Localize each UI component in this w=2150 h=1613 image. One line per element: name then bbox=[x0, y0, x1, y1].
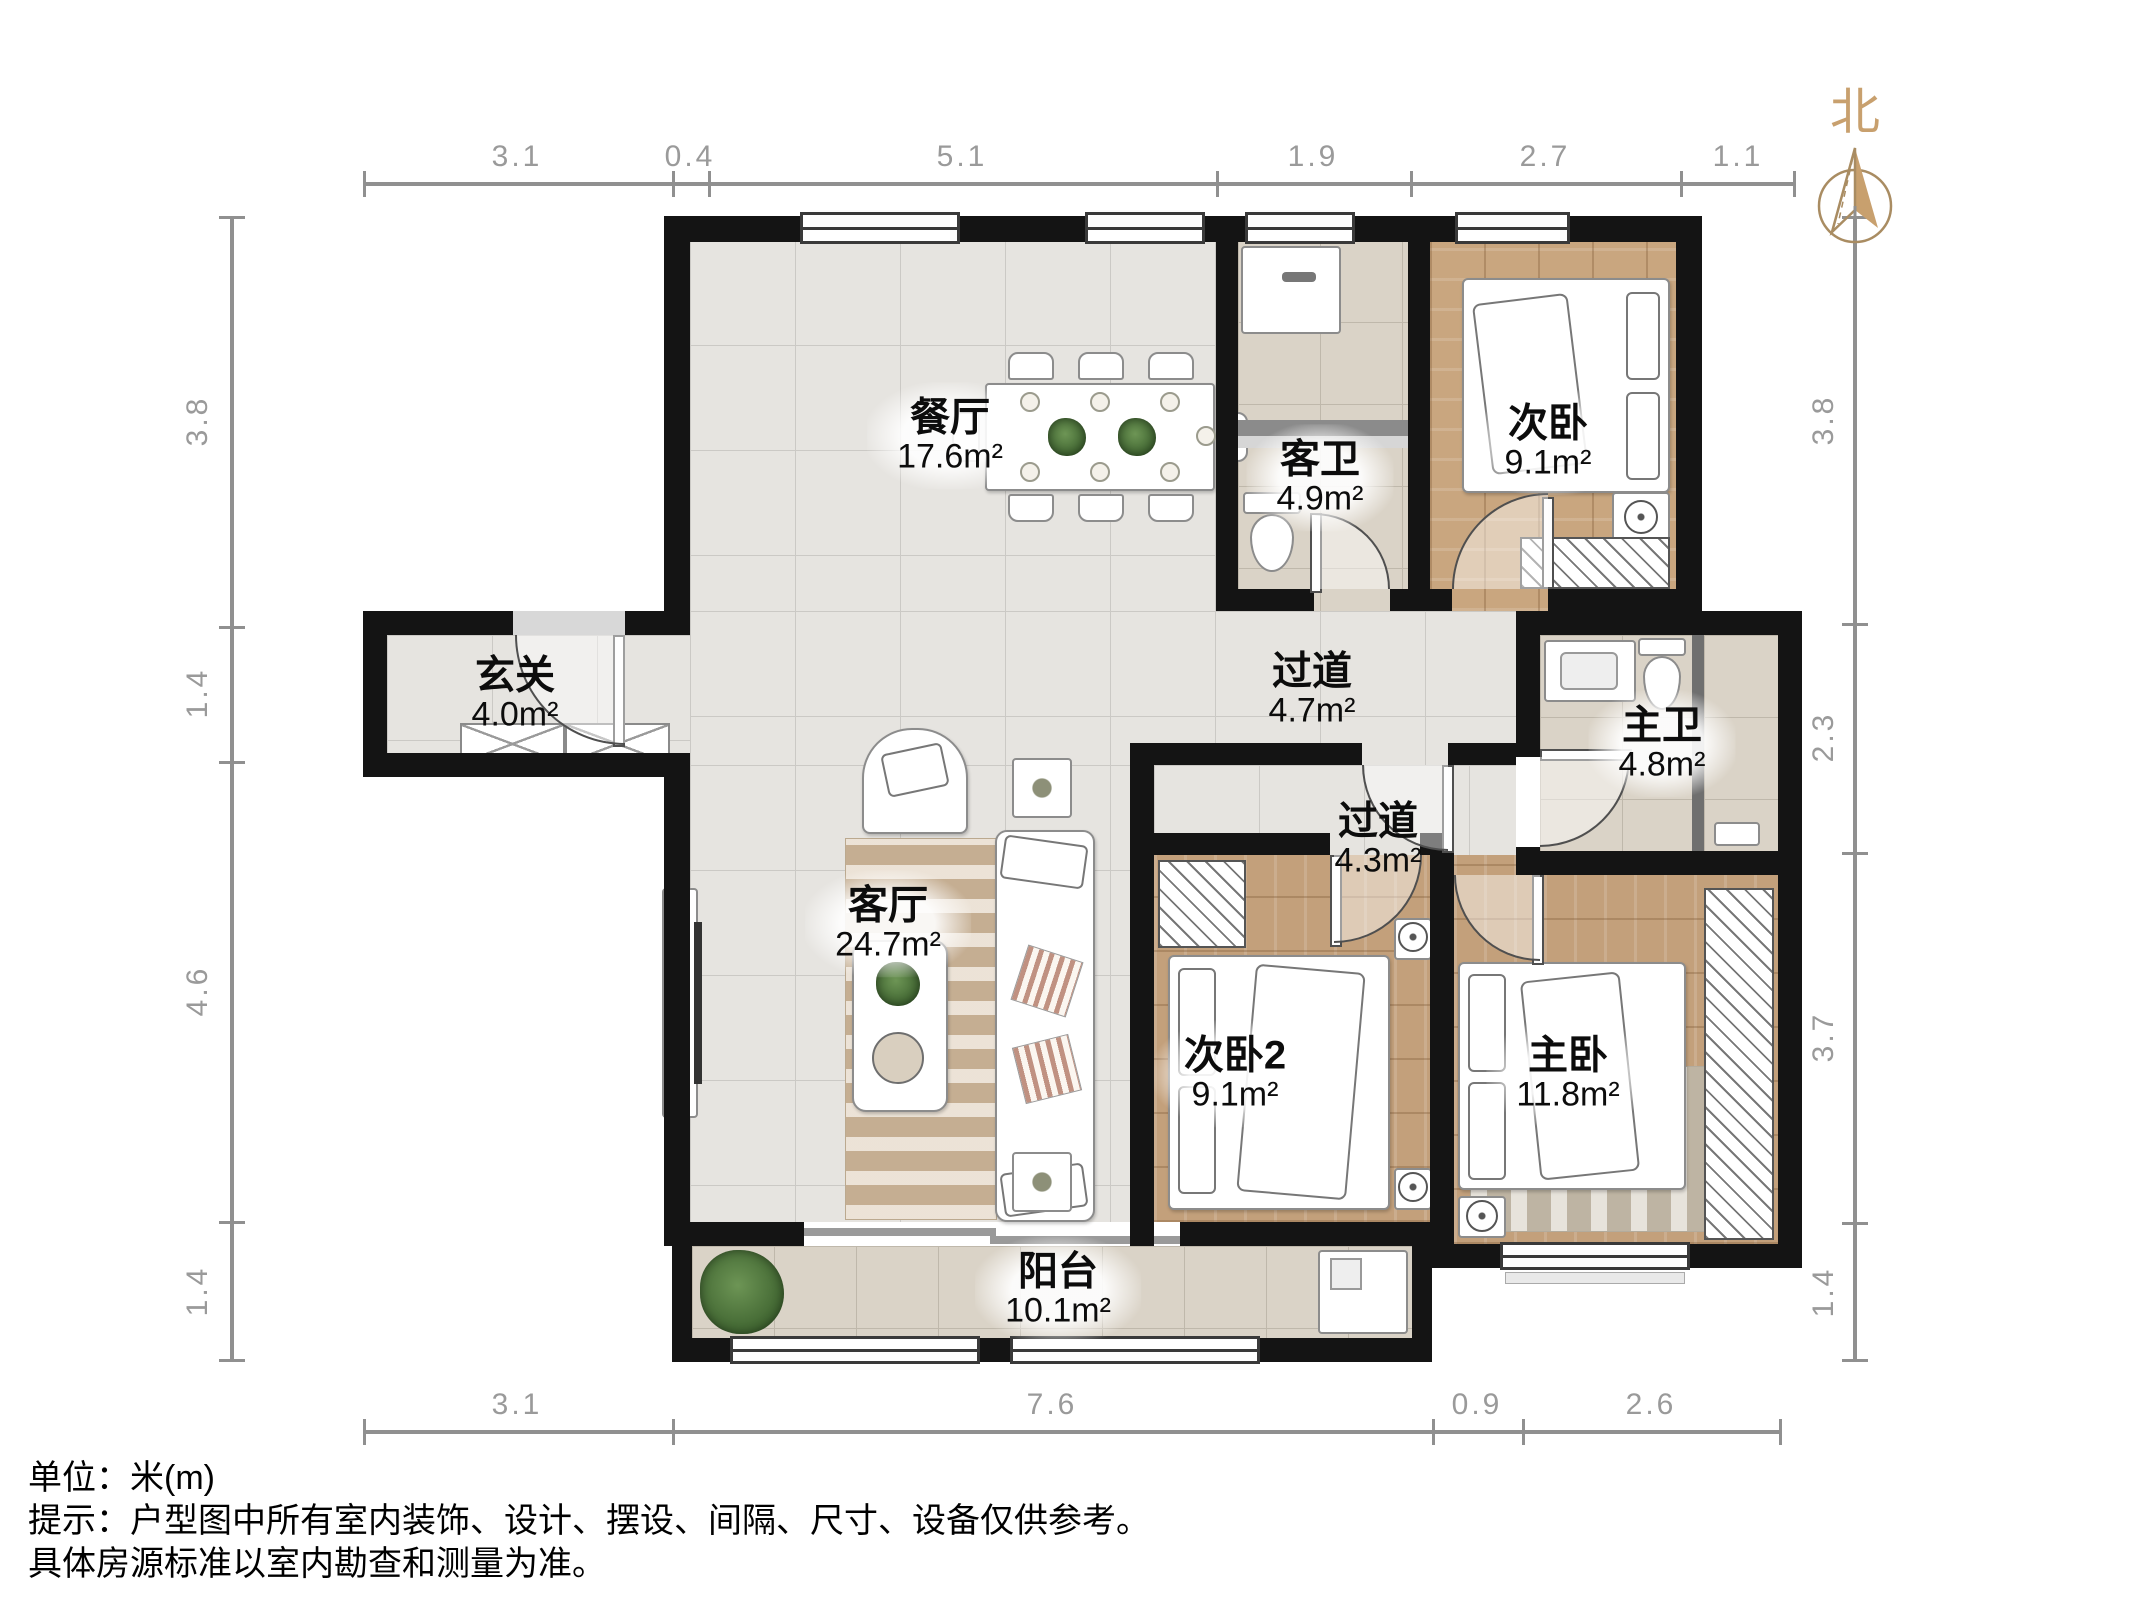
wall bbox=[1180, 1222, 1454, 1246]
wall bbox=[1448, 743, 1516, 765]
wardrobe-bedroom2 bbox=[1158, 860, 1246, 948]
room-name: 阳台 bbox=[1005, 1250, 1111, 1292]
shower-basin bbox=[1714, 822, 1760, 846]
wall bbox=[1778, 611, 1802, 1268]
dining-chair bbox=[1078, 352, 1124, 380]
tick bbox=[219, 1359, 245, 1362]
wall bbox=[1430, 833, 1454, 1246]
tv-screen bbox=[694, 922, 702, 1084]
wall bbox=[1216, 240, 1238, 589]
wall bbox=[1412, 1244, 1432, 1362]
dim-bottom: 3.1 bbox=[492, 1388, 543, 1422]
room-label-bedroom-2: 次卧2 9.1m² bbox=[1154, 1020, 1316, 1127]
dining-chair bbox=[1008, 352, 1054, 380]
wall bbox=[1516, 847, 1540, 875]
room-area: 4.8m² bbox=[1619, 746, 1706, 783]
tick bbox=[1842, 852, 1868, 855]
wall bbox=[1130, 743, 1362, 765]
room-name: 客卫 bbox=[1277, 438, 1364, 480]
wall bbox=[1408, 240, 1430, 589]
wall bbox=[1516, 611, 1802, 635]
wall bbox=[1154, 833, 1330, 855]
room-area: 4.9m² bbox=[1277, 480, 1364, 517]
tick bbox=[219, 761, 245, 764]
tick bbox=[1842, 623, 1868, 626]
table-plant bbox=[1048, 418, 1086, 456]
dimension-line-left bbox=[230, 216, 234, 1362]
plate bbox=[1196, 426, 1216, 446]
wall bbox=[1216, 589, 1314, 611]
dim-top: 5.1 bbox=[937, 140, 988, 174]
plate bbox=[1160, 462, 1180, 482]
window bbox=[1500, 1242, 1690, 1270]
room-label-master-bath: 主卫 4.8m² bbox=[1589, 690, 1736, 797]
room-name: 餐厅 bbox=[897, 396, 1003, 438]
room-label-master-bedroom: 主卧 11.8m² bbox=[1486, 1020, 1649, 1127]
door-threshold bbox=[513, 611, 625, 635]
room-label-balcony: 阳台 10.1m² bbox=[975, 1236, 1141, 1343]
room-area: 4.7m² bbox=[1269, 692, 1356, 729]
wall bbox=[363, 753, 688, 777]
lamp-symbol bbox=[1398, 1172, 1428, 1202]
window bbox=[730, 1336, 980, 1364]
room-area: 11.8m² bbox=[1516, 1076, 1619, 1113]
room-label-hallway-main: 过道 4.7m² bbox=[1259, 646, 1366, 733]
room-area: 9.1m² bbox=[1184, 1076, 1286, 1113]
window bbox=[1245, 212, 1355, 244]
guest-bath-counter bbox=[1241, 246, 1341, 334]
dimension-line-right bbox=[1853, 216, 1857, 1362]
decor-flower bbox=[1026, 1166, 1058, 1198]
dim-right: 1.4 bbox=[1807, 1267, 1841, 1318]
wall bbox=[664, 216, 690, 635]
room-label-bedroom-north: 次卧 9.1m² bbox=[1475, 388, 1622, 495]
footnote-unit: 单位：米(m) bbox=[28, 1450, 215, 1499]
tick bbox=[219, 216, 245, 219]
wall bbox=[625, 611, 664, 635]
tick bbox=[1522, 1419, 1525, 1445]
wall bbox=[1390, 589, 1452, 611]
room-area: 24.7m² bbox=[835, 926, 941, 963]
dim-top: 1.9 bbox=[1288, 140, 1339, 174]
dim-top: 3.1 bbox=[492, 140, 543, 174]
north-label: 北 bbox=[1830, 72, 1880, 144]
dim-top: 1.1 bbox=[1713, 140, 1764, 174]
bed-pillow bbox=[1626, 392, 1660, 480]
footnote-disclaimer-2: 具体房源标准以室内勘查和测量为准。 bbox=[28, 1536, 606, 1585]
decor-flower bbox=[1026, 772, 1058, 804]
dining-chair bbox=[1148, 494, 1194, 522]
toilet-master bbox=[1638, 638, 1686, 656]
tick bbox=[363, 171, 366, 197]
dim-bottom: 7.6 bbox=[1027, 1388, 1078, 1422]
dimension-line-top bbox=[363, 182, 1796, 186]
room-label-guest-bath: 客卫 4.9m² bbox=[1247, 424, 1394, 531]
wall bbox=[664, 753, 690, 1246]
room-name: 玄关 bbox=[472, 654, 559, 696]
tick bbox=[1842, 1222, 1868, 1225]
room-name: 主卫 bbox=[1619, 704, 1706, 746]
wall bbox=[1548, 589, 1676, 611]
dim-bottom: 0.9 bbox=[1452, 1388, 1503, 1422]
north-arrow-icon bbox=[1810, 140, 1900, 250]
sliding-door bbox=[804, 1228, 996, 1236]
tick bbox=[219, 1221, 245, 1224]
tick bbox=[219, 626, 245, 629]
tick bbox=[1680, 171, 1683, 197]
basin bbox=[1560, 652, 1618, 690]
room-area: 4.3m² bbox=[1335, 842, 1422, 879]
room-name: 主卧 bbox=[1516, 1034, 1619, 1076]
lamp-symbol bbox=[1624, 500, 1658, 534]
footnote-disclaimer-1: 提示：户型图中所有室内装饰、设计、摆设、间隔、尺寸、设备仅供参考。 bbox=[28, 1493, 1150, 1542]
dimension-line-bottom bbox=[363, 1430, 1782, 1434]
lamp-symbol bbox=[1398, 922, 1428, 952]
plate bbox=[1090, 392, 1110, 412]
dim-left: 3.8 bbox=[181, 396, 215, 447]
room-label-hallway-bedroom: 过道 4.3m² bbox=[1325, 796, 1432, 883]
dining-chair bbox=[1078, 494, 1124, 522]
dim-top: 2.7 bbox=[1520, 140, 1571, 174]
tick bbox=[1793, 171, 1796, 197]
plate bbox=[1090, 462, 1110, 482]
room-area: 10.1m² bbox=[1005, 1292, 1111, 1329]
wall bbox=[664, 1222, 804, 1246]
tick bbox=[1779, 1419, 1782, 1445]
floor-plan: 餐厅 17.6m² 客卫 4.9m² 次卧 9.1m² 玄关 4.0m² 过道 … bbox=[0, 0, 2150, 1613]
room-area: 17.6m² bbox=[897, 438, 1003, 475]
balcony-plant bbox=[700, 1250, 784, 1334]
window-sill bbox=[1505, 1272, 1685, 1284]
room-name: 次卧2 bbox=[1184, 1034, 1286, 1076]
room-name: 客厅 bbox=[835, 884, 941, 926]
tick bbox=[672, 171, 675, 197]
dim-left: 1.4 bbox=[181, 668, 215, 719]
room-label-living: 客厅 24.7m² bbox=[805, 870, 971, 977]
dim-right: 3.8 bbox=[1807, 395, 1841, 446]
faucet bbox=[1282, 272, 1316, 282]
dim-left: 4.6 bbox=[181, 966, 215, 1017]
room-name: 次卧 bbox=[1505, 402, 1592, 444]
tick bbox=[1432, 1419, 1435, 1445]
table-plant bbox=[1118, 418, 1156, 456]
dim-right: 3.7 bbox=[1807, 1012, 1841, 1063]
tick bbox=[1216, 171, 1219, 197]
wall bbox=[1516, 611, 1540, 757]
room-name: 过道 bbox=[1335, 800, 1422, 842]
dim-right: 2.3 bbox=[1807, 712, 1841, 763]
dim-left: 1.4 bbox=[181, 1266, 215, 1317]
tea-tray bbox=[872, 1032, 924, 1084]
tick bbox=[708, 171, 711, 197]
wall bbox=[1540, 851, 1802, 875]
bed-pillow bbox=[1626, 292, 1660, 380]
tick bbox=[1842, 1359, 1868, 1362]
room-label-dining: 餐厅 17.6m² bbox=[867, 382, 1033, 489]
room-area: 9.1m² bbox=[1505, 444, 1592, 481]
window bbox=[1455, 212, 1570, 244]
balcony-cabinet-sink bbox=[1330, 1258, 1362, 1290]
wall bbox=[1676, 216, 1702, 635]
dining-chair bbox=[1008, 494, 1054, 522]
window bbox=[1085, 212, 1205, 244]
room-label-entry: 玄关 4.0m² bbox=[462, 650, 569, 737]
dim-bottom: 2.6 bbox=[1626, 1388, 1677, 1422]
tick bbox=[1410, 171, 1413, 197]
room-area: 4.0m² bbox=[472, 696, 559, 733]
tick bbox=[363, 1419, 366, 1445]
dim-top: 0.4 bbox=[665, 140, 716, 174]
wardrobe-master bbox=[1704, 888, 1774, 1240]
tick bbox=[672, 1419, 675, 1445]
wall bbox=[1130, 743, 1154, 1246]
room-name: 过道 bbox=[1269, 650, 1356, 692]
wall bbox=[672, 1246, 692, 1338]
dining-chair bbox=[1148, 352, 1194, 380]
lamp-symbol bbox=[1466, 1200, 1498, 1232]
hallway-main-floor bbox=[690, 611, 1516, 765]
plate bbox=[1160, 392, 1180, 412]
window bbox=[800, 212, 960, 244]
